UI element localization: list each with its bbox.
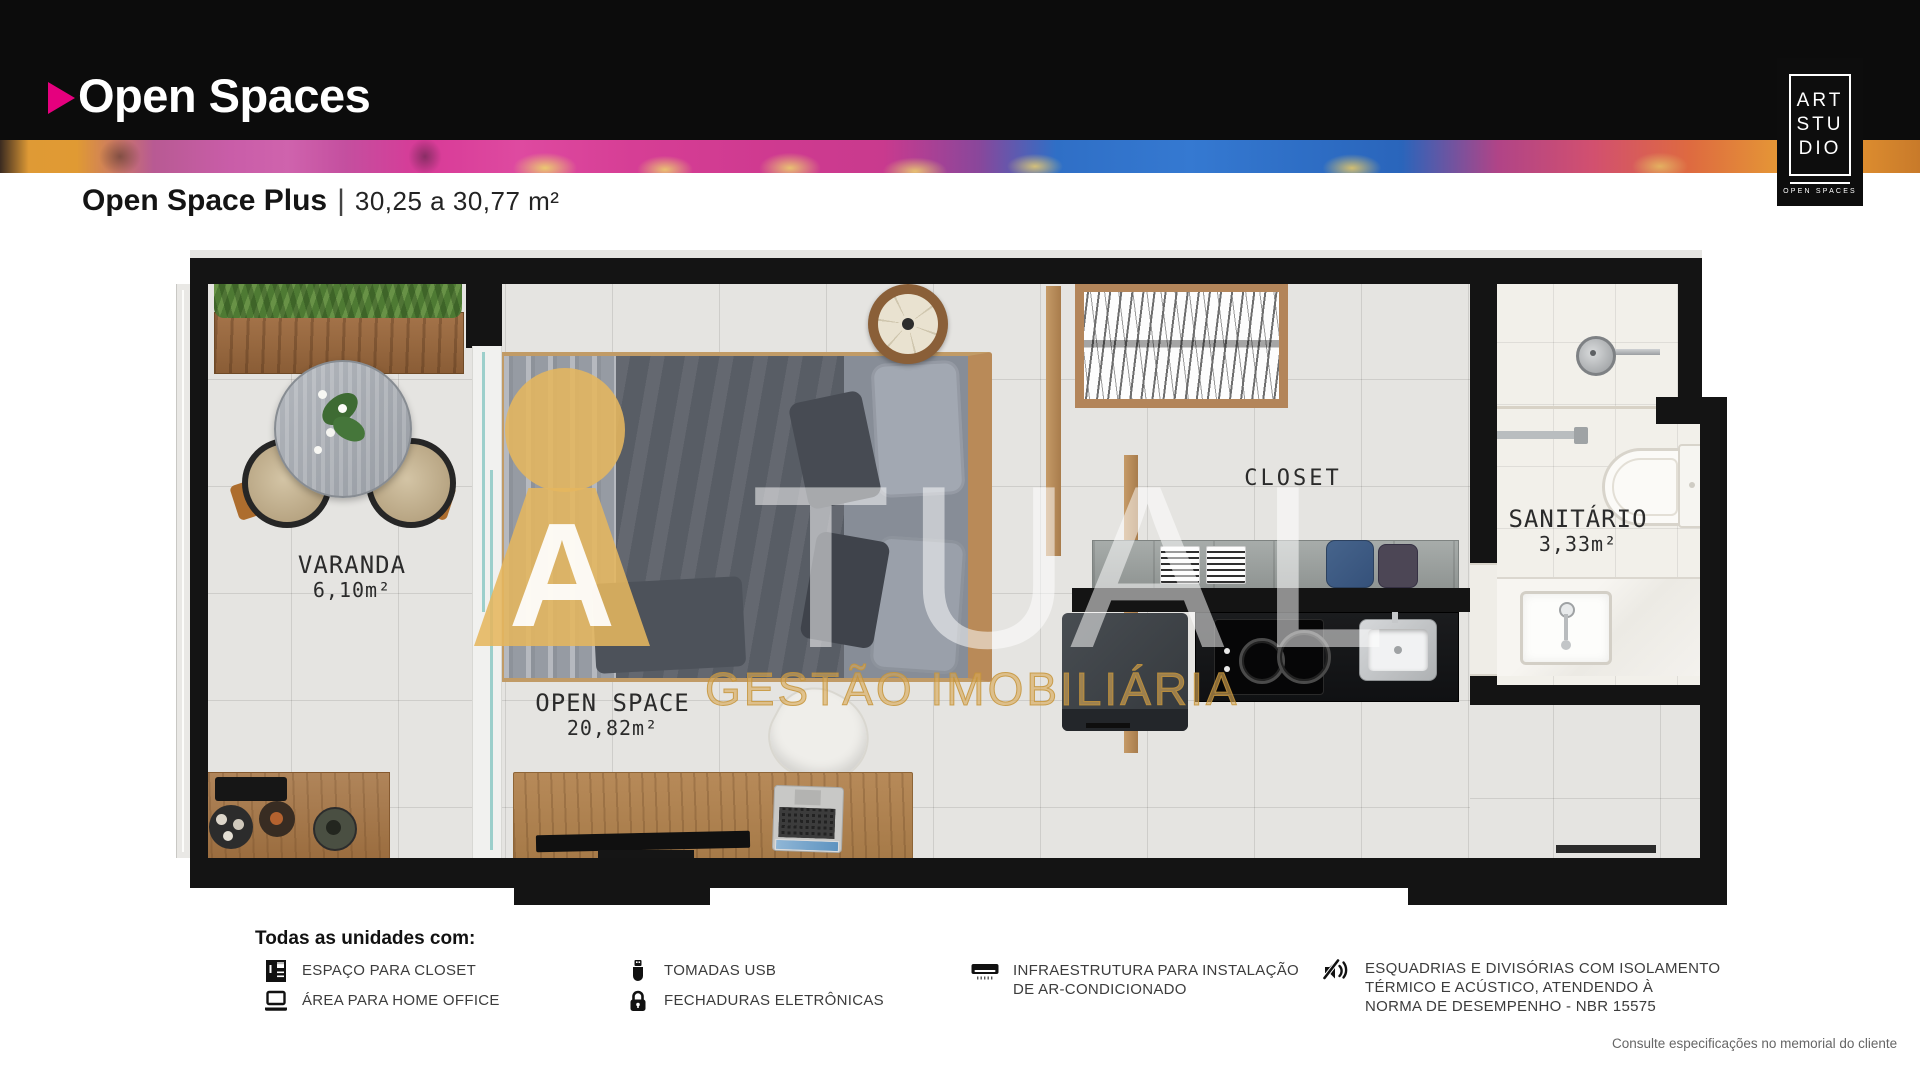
room-name: OPEN SPACE bbox=[505, 690, 720, 716]
wall-bottom bbox=[190, 858, 1412, 888]
legend-label: ESPAÇO PARA CLOSET bbox=[302, 958, 476, 980]
artstudio-logo: ART STU DIO OPEN SPACES bbox=[1777, 58, 1863, 206]
legend-label: ESQUADRIAS E DIVISÓRIAS COM ISOLAMENTO T… bbox=[1365, 956, 1720, 1016]
laptop-icon bbox=[263, 988, 289, 1019]
wall-bath-right-upper bbox=[1678, 258, 1702, 408]
bathroom-door-opening bbox=[1470, 563, 1497, 676]
shower-head bbox=[1576, 336, 1616, 376]
laptop bbox=[772, 785, 844, 853]
lock-icon bbox=[625, 988, 651, 1019]
closet-icon bbox=[263, 958, 289, 989]
legend-label: TOMADAS USB bbox=[664, 958, 776, 980]
bed bbox=[500, 352, 992, 682]
closet-rack bbox=[1075, 283, 1288, 408]
bathroom-sink bbox=[1520, 591, 1612, 665]
legend-item-closet: ESPAÇO PARA CLOSET bbox=[263, 958, 476, 989]
wall-door-stub bbox=[466, 258, 502, 348]
plan-title: Open Space Plus | 30,25 a 30,77 m² bbox=[82, 184, 559, 218]
vanity bbox=[1478, 577, 1702, 676]
wall-bath-bottom bbox=[1470, 685, 1727, 705]
legend-item-sound-insulation: ESQUADRIAS E DIVISÓRIAS COM ISOLAMENTO T… bbox=[1322, 956, 1720, 1016]
wall-decor-clock bbox=[868, 284, 948, 364]
wall-kitchen-band bbox=[1072, 588, 1470, 612]
room-name: CLOSET bbox=[1238, 466, 1348, 492]
closet-panel-upper bbox=[1046, 286, 1061, 556]
balcony-railing bbox=[176, 284, 191, 858]
artstudio-logo-frame: ART STU DIO bbox=[1789, 74, 1851, 176]
pillow-light-top bbox=[871, 360, 966, 498]
room-area: 6,10m² bbox=[262, 578, 442, 602]
legend-item-usb: TOMADAS USB bbox=[625, 958, 776, 989]
refrigerator bbox=[1062, 613, 1188, 731]
round-table bbox=[274, 360, 412, 498]
towel-stack-1 bbox=[1160, 546, 1200, 584]
glass-sliding-door bbox=[472, 346, 502, 858]
wall-right bbox=[1700, 420, 1727, 858]
wall-bottom-right bbox=[1408, 858, 1727, 905]
planter-greenery bbox=[214, 284, 462, 318]
kitchen-counter bbox=[1195, 612, 1459, 702]
towel-stack-2 bbox=[1206, 546, 1246, 584]
footnote: Consulte especificações no memorial do c… bbox=[1612, 1036, 1897, 1051]
logo-line-2: STU bbox=[1797, 113, 1844, 137]
room-label-varanda: VARANDA 6,10m² bbox=[262, 552, 442, 602]
bag-blue bbox=[1326, 540, 1374, 588]
logo-line-1: ART bbox=[1797, 89, 1844, 113]
kitchen-sink bbox=[1359, 619, 1437, 681]
cooktop bbox=[1214, 619, 1324, 695]
logo-divider bbox=[1790, 182, 1850, 184]
logo-caption: OPEN SPACES bbox=[1777, 188, 1863, 195]
room-label-open-space: OPEN SPACE 20,82m² bbox=[505, 690, 720, 740]
usb-icon bbox=[625, 958, 651, 989]
legend-title: Todas as unidades com: bbox=[255, 928, 475, 950]
legend-label: ÁREA PARA HOME OFFICE bbox=[302, 988, 500, 1010]
sideboard bbox=[196, 772, 390, 862]
title-arrow-icon bbox=[48, 82, 75, 114]
bath-tile-divider bbox=[1497, 406, 1678, 409]
room-area: 3,33m² bbox=[1478, 532, 1678, 556]
plan-area-range: 30,25 a 30,77 m² bbox=[355, 186, 560, 217]
shower-bar-handle bbox=[1574, 427, 1588, 444]
legend-item-lock: FECHADURAS ELETRÔNICAS bbox=[625, 988, 884, 1019]
legend-label: FECHADURAS ELETRÔNICAS bbox=[664, 988, 884, 1010]
top-sill bbox=[190, 250, 1702, 258]
plan-name: Open Space Plus bbox=[82, 184, 327, 218]
decorative-color-strip bbox=[0, 140, 1920, 173]
wall-bottom-protrusion bbox=[514, 858, 710, 905]
wall-left bbox=[190, 258, 208, 888]
room-name: VARANDA bbox=[262, 552, 442, 578]
legend-item-ac: INFRAESTRUTURA PARA INSTALAÇÃO DE AR-CON… bbox=[970, 958, 1299, 999]
bed-throw bbox=[592, 576, 747, 674]
room-label-closet: CLOSET bbox=[1238, 466, 1348, 492]
sound-insulation-icon bbox=[1322, 956, 1352, 989]
nook-floor bbox=[1470, 703, 1704, 858]
legend-label: INFRAESTRUTURA PARA INSTALAÇÃO DE AR-CON… bbox=[1013, 958, 1299, 999]
plan-title-separator: | bbox=[337, 184, 345, 218]
threshold-line bbox=[1556, 845, 1656, 853]
page-title: Open Spaces bbox=[78, 68, 370, 123]
room-label-sanitario: SANITÁRIO 3,33m² bbox=[1478, 506, 1678, 556]
room-area: 20,82m² bbox=[505, 716, 720, 740]
ac-icon bbox=[970, 958, 1000, 989]
legend-item-home-office: ÁREA PARA HOME OFFICE bbox=[263, 988, 500, 1019]
room-name: SANITÁRIO bbox=[1478, 506, 1678, 532]
logo-line-3: DIO bbox=[1799, 137, 1842, 161]
bag-dark bbox=[1378, 544, 1418, 588]
